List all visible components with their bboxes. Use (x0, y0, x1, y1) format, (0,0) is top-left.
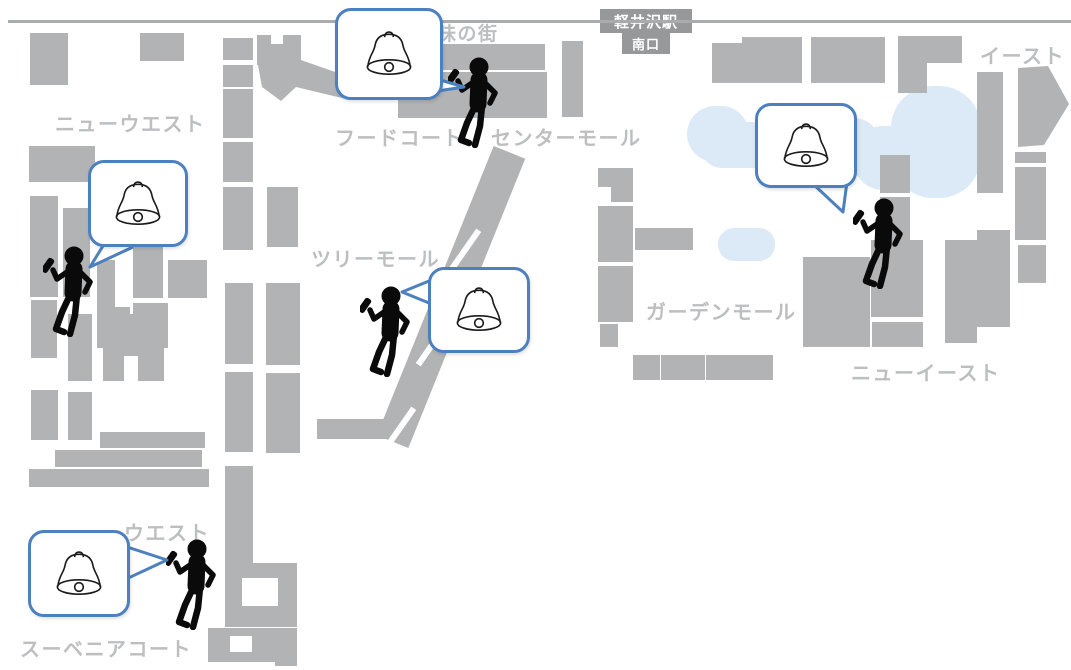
building (30, 33, 68, 85)
building (266, 283, 300, 365)
building-cutout (271, 35, 283, 44)
bell-icon (109, 179, 167, 229)
building (31, 390, 58, 440)
person-with-phone-icon[interactable] (43, 245, 95, 337)
bell-icon (50, 549, 108, 599)
road-line (8, 20, 1071, 23)
marker-east[interactable] (755, 103, 857, 188)
building (275, 630, 297, 666)
building-cutout (242, 578, 278, 606)
bell-icon (450, 285, 508, 335)
area-label-aji-no-machi: 味の街 (437, 19, 499, 46)
building (100, 432, 205, 448)
building (223, 38, 253, 60)
building (598, 266, 633, 322)
building (29, 469, 209, 487)
building (872, 322, 923, 347)
building (898, 36, 962, 63)
building (133, 247, 163, 298)
area-label-souvenir-court: スーベニアコート (20, 633, 192, 662)
building (880, 155, 910, 193)
station-badge-line2: 南口 (622, 33, 670, 54)
building (68, 392, 92, 440)
building (225, 283, 253, 364)
person-with-phone-icon[interactable] (448, 56, 500, 148)
pond (718, 228, 775, 261)
marker-tree-mall[interactable] (428, 267, 530, 353)
building (598, 206, 633, 262)
building (1015, 152, 1046, 163)
mall-map: 軽井沢駅 南口 ニューウエスト味の街フードコートセンターモールイーストツリーモー… (0, 0, 1071, 670)
person-with-phone-icon[interactable] (853, 197, 905, 289)
building-cutout (598, 187, 611, 203)
building-cutout (230, 636, 252, 652)
area-label-east: イースト (980, 40, 1065, 69)
building (945, 240, 977, 343)
building (977, 230, 1010, 327)
area-label-garden-mall: ガーデンモール (646, 296, 797, 325)
building (223, 142, 253, 182)
area-label-new-east: ニューイースト (851, 357, 1001, 386)
bell-icon (360, 29, 418, 79)
marker-west[interactable] (28, 530, 130, 617)
building (223, 89, 253, 138)
building (29, 146, 95, 182)
building (225, 466, 253, 563)
area-label-center-mall: センターモール (491, 122, 642, 151)
east-arrow (1018, 66, 1069, 147)
bell-icon (777, 121, 835, 171)
building (1018, 245, 1046, 283)
building (223, 187, 253, 250)
area-label-tree-mall: ツリーモール (311, 243, 440, 272)
area-label-new-west: ニューウエスト (55, 108, 206, 137)
building (266, 373, 300, 453)
building (140, 33, 184, 61)
building (223, 65, 253, 87)
marker-food-court[interactable] (335, 8, 443, 100)
building (977, 72, 1003, 193)
marker-new-west[interactable] (88, 160, 188, 247)
building (225, 372, 253, 452)
building (633, 355, 660, 380)
building (562, 41, 583, 117)
building (55, 450, 202, 467)
building (898, 63, 927, 93)
building (706, 355, 773, 380)
building (1015, 167, 1046, 240)
building (600, 324, 618, 347)
building (635, 228, 693, 250)
building (267, 187, 298, 247)
area-label-food-court: フードコート (335, 122, 464, 151)
marker-west-tail (124, 546, 167, 580)
station-badge: 軽井沢駅 南口 (600, 9, 692, 54)
building (168, 260, 207, 298)
building (742, 37, 802, 83)
building (661, 355, 705, 380)
building-cutout (124, 356, 138, 382)
person-with-phone-icon[interactable] (360, 285, 412, 377)
building (811, 37, 885, 83)
person-with-phone-icon[interactable] (166, 538, 218, 630)
